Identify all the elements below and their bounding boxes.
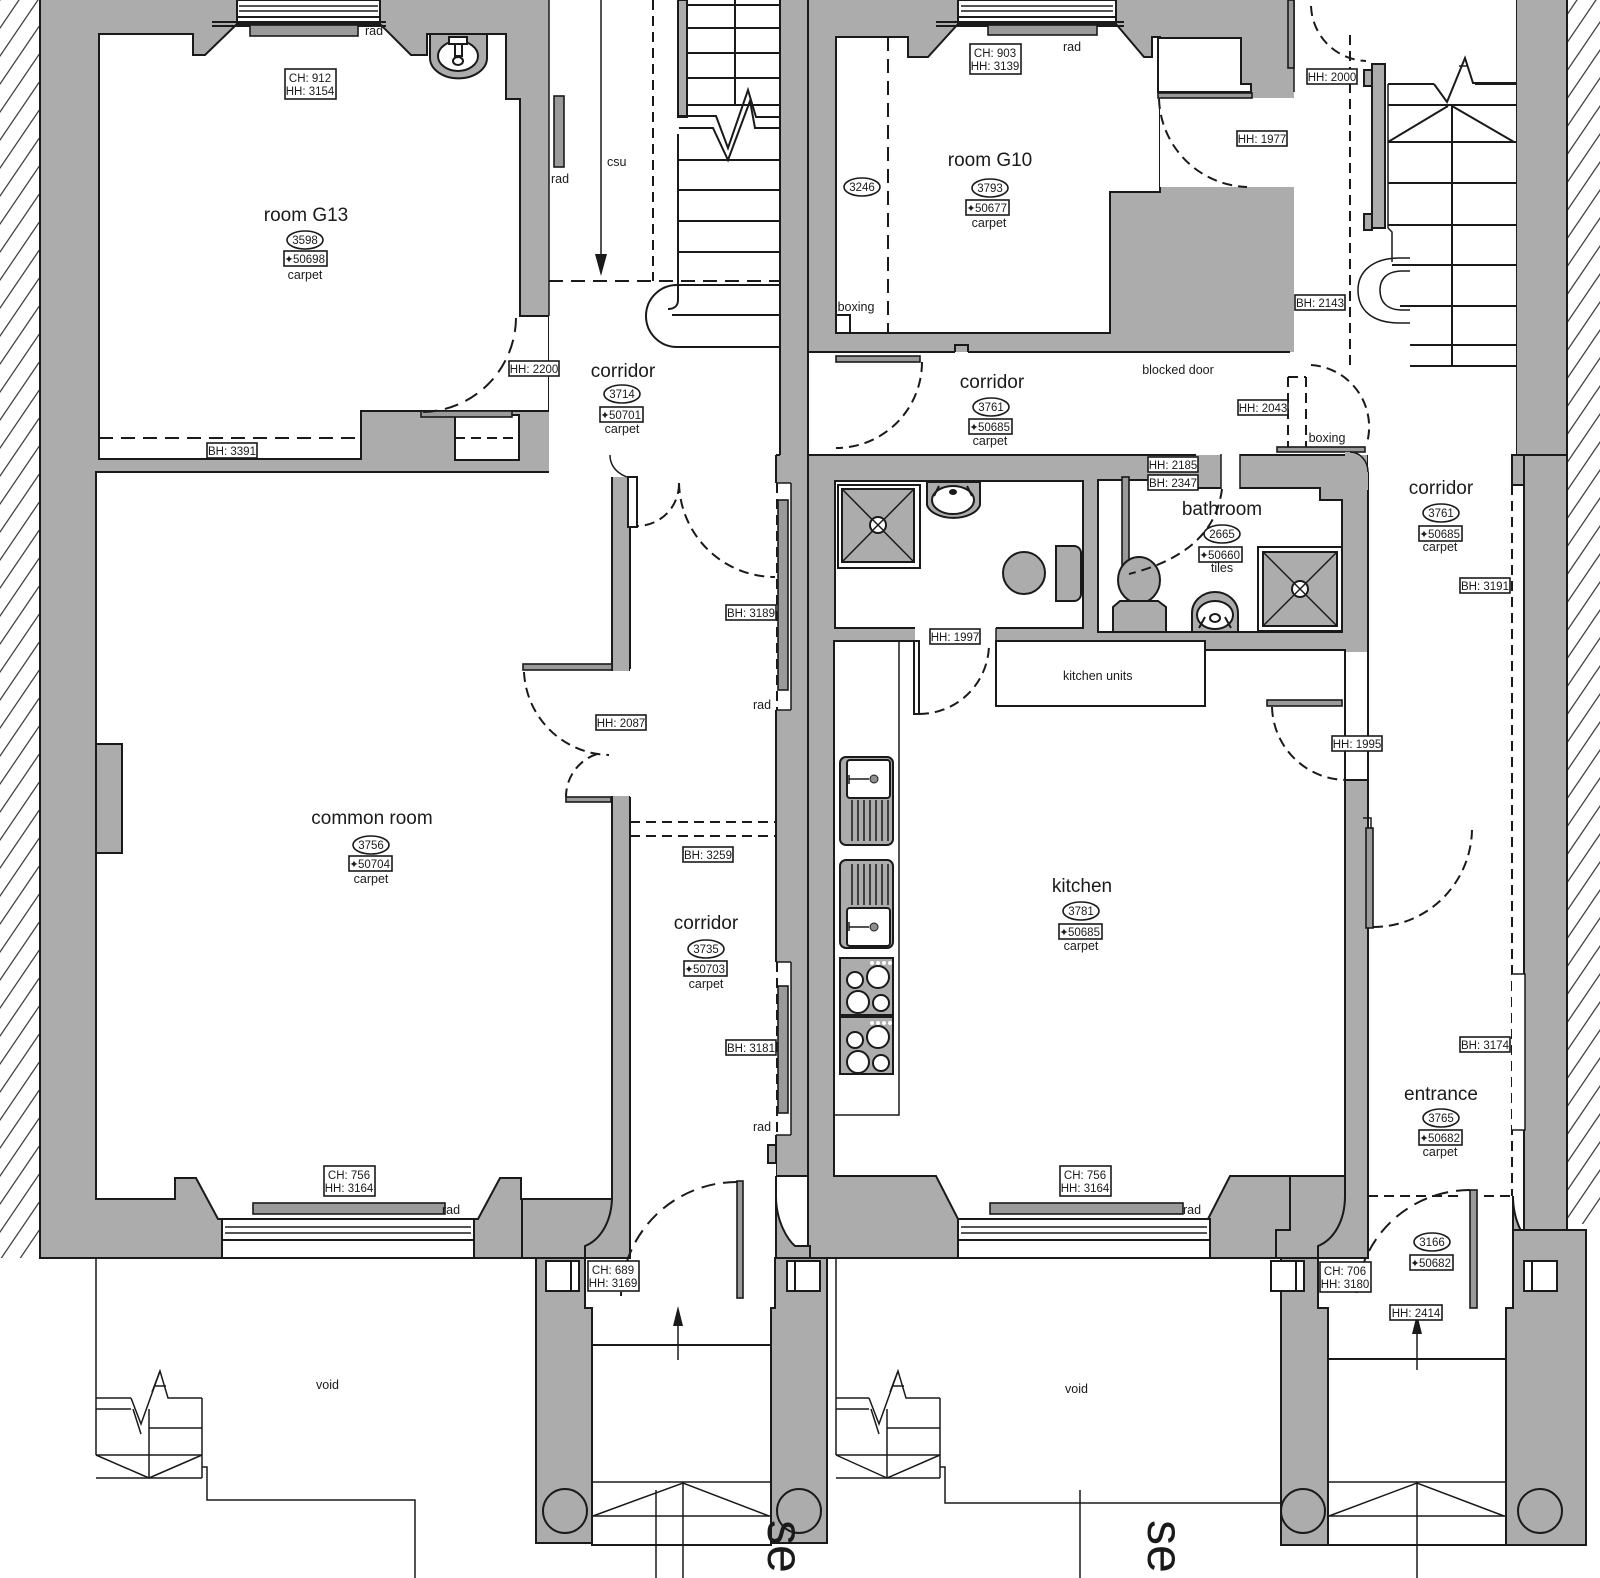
svg-text:3761: 3761: [978, 402, 1004, 414]
svg-text:50682: 50682: [1419, 1258, 1451, 1270]
svg-text:rad: rad: [753, 1120, 771, 1134]
svg-text:HH: 1995: HH: 1995: [1333, 739, 1382, 751]
svg-text:carpet: carpet: [1423, 540, 1458, 554]
svg-text:bathroom: bathroom: [1182, 499, 1262, 520]
svg-text:carpet: carpet: [973, 434, 1008, 448]
svg-text:3166: 3166: [1419, 1237, 1445, 1249]
svg-text:50685: 50685: [978, 422, 1010, 434]
svg-text:✦: ✦: [1419, 1133, 1428, 1145]
svg-text:HH: 3154: HH: 3154: [286, 86, 335, 98]
svg-text:BH: 2143: BH: 2143: [1296, 298, 1344, 310]
svg-text:2665: 2665: [1209, 529, 1235, 541]
svg-text:HH: 2200: HH: 2200: [510, 364, 559, 376]
svg-text:blocked door: blocked door: [1142, 363, 1214, 377]
svg-text:CH: 903: CH: 903: [974, 48, 1016, 60]
svg-text:✦: ✦: [284, 254, 293, 266]
svg-text:✦: ✦: [600, 410, 609, 422]
svg-text:HH: 2185: HH: 2185: [1149, 460, 1198, 472]
svg-text:3765: 3765: [1428, 1113, 1454, 1125]
svg-text:CH: 689: CH: 689: [592, 1265, 634, 1277]
svg-text:boxing: boxing: [1309, 431, 1346, 445]
svg-text:HH: 2414: HH: 2414: [1392, 1308, 1441, 1320]
svg-text:3246: 3246: [849, 182, 875, 194]
svg-text:room G10: room G10: [948, 150, 1032, 171]
svg-text:boxing: boxing: [838, 300, 875, 314]
svg-text:room G13: room G13: [264, 205, 348, 226]
svg-text:50685: 50685: [1068, 927, 1100, 939]
svg-text:corridor: corridor: [674, 913, 739, 934]
svg-text:carpet: carpet: [1064, 939, 1099, 953]
svg-text:3781: 3781: [1068, 906, 1094, 918]
svg-text:HH: 3164: HH: 3164: [1061, 1183, 1110, 1195]
svg-text:rad: rad: [551, 172, 569, 186]
svg-text:HH: 1997: HH: 1997: [931, 632, 980, 644]
svg-text:3761: 3761: [1428, 508, 1454, 520]
svg-text:HH: 3139: HH: 3139: [971, 61, 1020, 73]
svg-text:50677: 50677: [975, 203, 1007, 215]
svg-text:HH: 1977: HH: 1977: [1238, 134, 1287, 146]
svg-text:rad: rad: [753, 698, 771, 712]
svg-text:common room: common room: [311, 808, 432, 829]
svg-text:carpet: carpet: [605, 422, 640, 436]
svg-text:BH: 3181: BH: 3181: [727, 1043, 775, 1055]
svg-text:carpet: carpet: [288, 268, 323, 282]
svg-text:rad: rad: [1183, 1203, 1201, 1217]
svg-text:HH: 2087: HH: 2087: [597, 718, 646, 730]
svg-text:carpet: carpet: [972, 216, 1007, 230]
svg-text:carpet: carpet: [689, 977, 724, 991]
svg-text:✦: ✦: [966, 203, 975, 215]
svg-text:void: void: [316, 1378, 339, 1392]
svg-text:HH: 2000: HH: 2000: [1308, 72, 1357, 84]
svg-text:✦: ✦: [349, 859, 358, 871]
svg-text:CH: 756: CH: 756: [1064, 1170, 1106, 1182]
svg-text:✦: ✦: [969, 422, 978, 434]
svg-text:corridor: corridor: [591, 361, 656, 382]
svg-text:3793: 3793: [977, 183, 1003, 195]
svg-text:se: se: [1137, 1520, 1193, 1573]
svg-text:CH: 912: CH: 912: [289, 73, 331, 85]
svg-text:50704: 50704: [358, 859, 391, 871]
svg-text:rad: rad: [442, 1203, 460, 1217]
svg-text:50703: 50703: [693, 964, 725, 976]
svg-text:se: se: [757, 1520, 813, 1573]
svg-text:3735: 3735: [693, 944, 719, 956]
svg-text:50701: 50701: [609, 410, 641, 422]
svg-text:entrance: entrance: [1404, 1084, 1478, 1105]
svg-text:✦: ✦: [1410, 1258, 1419, 1270]
svg-text:✦: ✦: [684, 964, 693, 976]
svg-text:rad: rad: [365, 24, 383, 38]
svg-text:csu: csu: [607, 155, 627, 169]
svg-text:✦: ✦: [1059, 927, 1068, 939]
svg-text:BH: 2347: BH: 2347: [1149, 478, 1197, 490]
svg-text:HH: 3169: HH: 3169: [589, 1278, 638, 1290]
svg-text:50682: 50682: [1428, 1133, 1460, 1145]
svg-text:BH: 3189: BH: 3189: [727, 608, 775, 620]
svg-text:carpet: carpet: [1423, 1145, 1458, 1159]
svg-text:carpet: carpet: [354, 872, 389, 886]
svg-text:CH: 706: CH: 706: [1324, 1266, 1366, 1278]
svg-text:BH: 3174: BH: 3174: [1461, 1040, 1510, 1052]
svg-text:✦: ✦: [1199, 550, 1208, 562]
svg-text:CH: 756: CH: 756: [328, 1170, 370, 1182]
svg-text:HH: 3180: HH: 3180: [1321, 1279, 1370, 1291]
svg-text:kitchen units: kitchen units: [1063, 669, 1132, 683]
svg-text:corridor: corridor: [960, 372, 1025, 393]
svg-text:3598: 3598: [292, 235, 318, 247]
svg-text:HH: 3164: HH: 3164: [325, 1183, 374, 1195]
svg-text:HH: 2043: HH: 2043: [1239, 403, 1288, 415]
svg-text:3756: 3756: [358, 840, 384, 852]
svg-text:BH: 3391: BH: 3391: [208, 446, 256, 458]
svg-text:BH: 3259: BH: 3259: [684, 850, 732, 862]
svg-text:50698: 50698: [293, 254, 325, 266]
svg-text:rad: rad: [1063, 40, 1081, 54]
svg-text:corridor: corridor: [1409, 478, 1474, 499]
svg-text:void: void: [1065, 1382, 1088, 1396]
svg-text:tiles: tiles: [1211, 561, 1233, 575]
svg-text:kitchen: kitchen: [1052, 876, 1112, 897]
svg-text:BH: 3191: BH: 3191: [1461, 581, 1509, 593]
svg-text:3714: 3714: [609, 389, 635, 401]
